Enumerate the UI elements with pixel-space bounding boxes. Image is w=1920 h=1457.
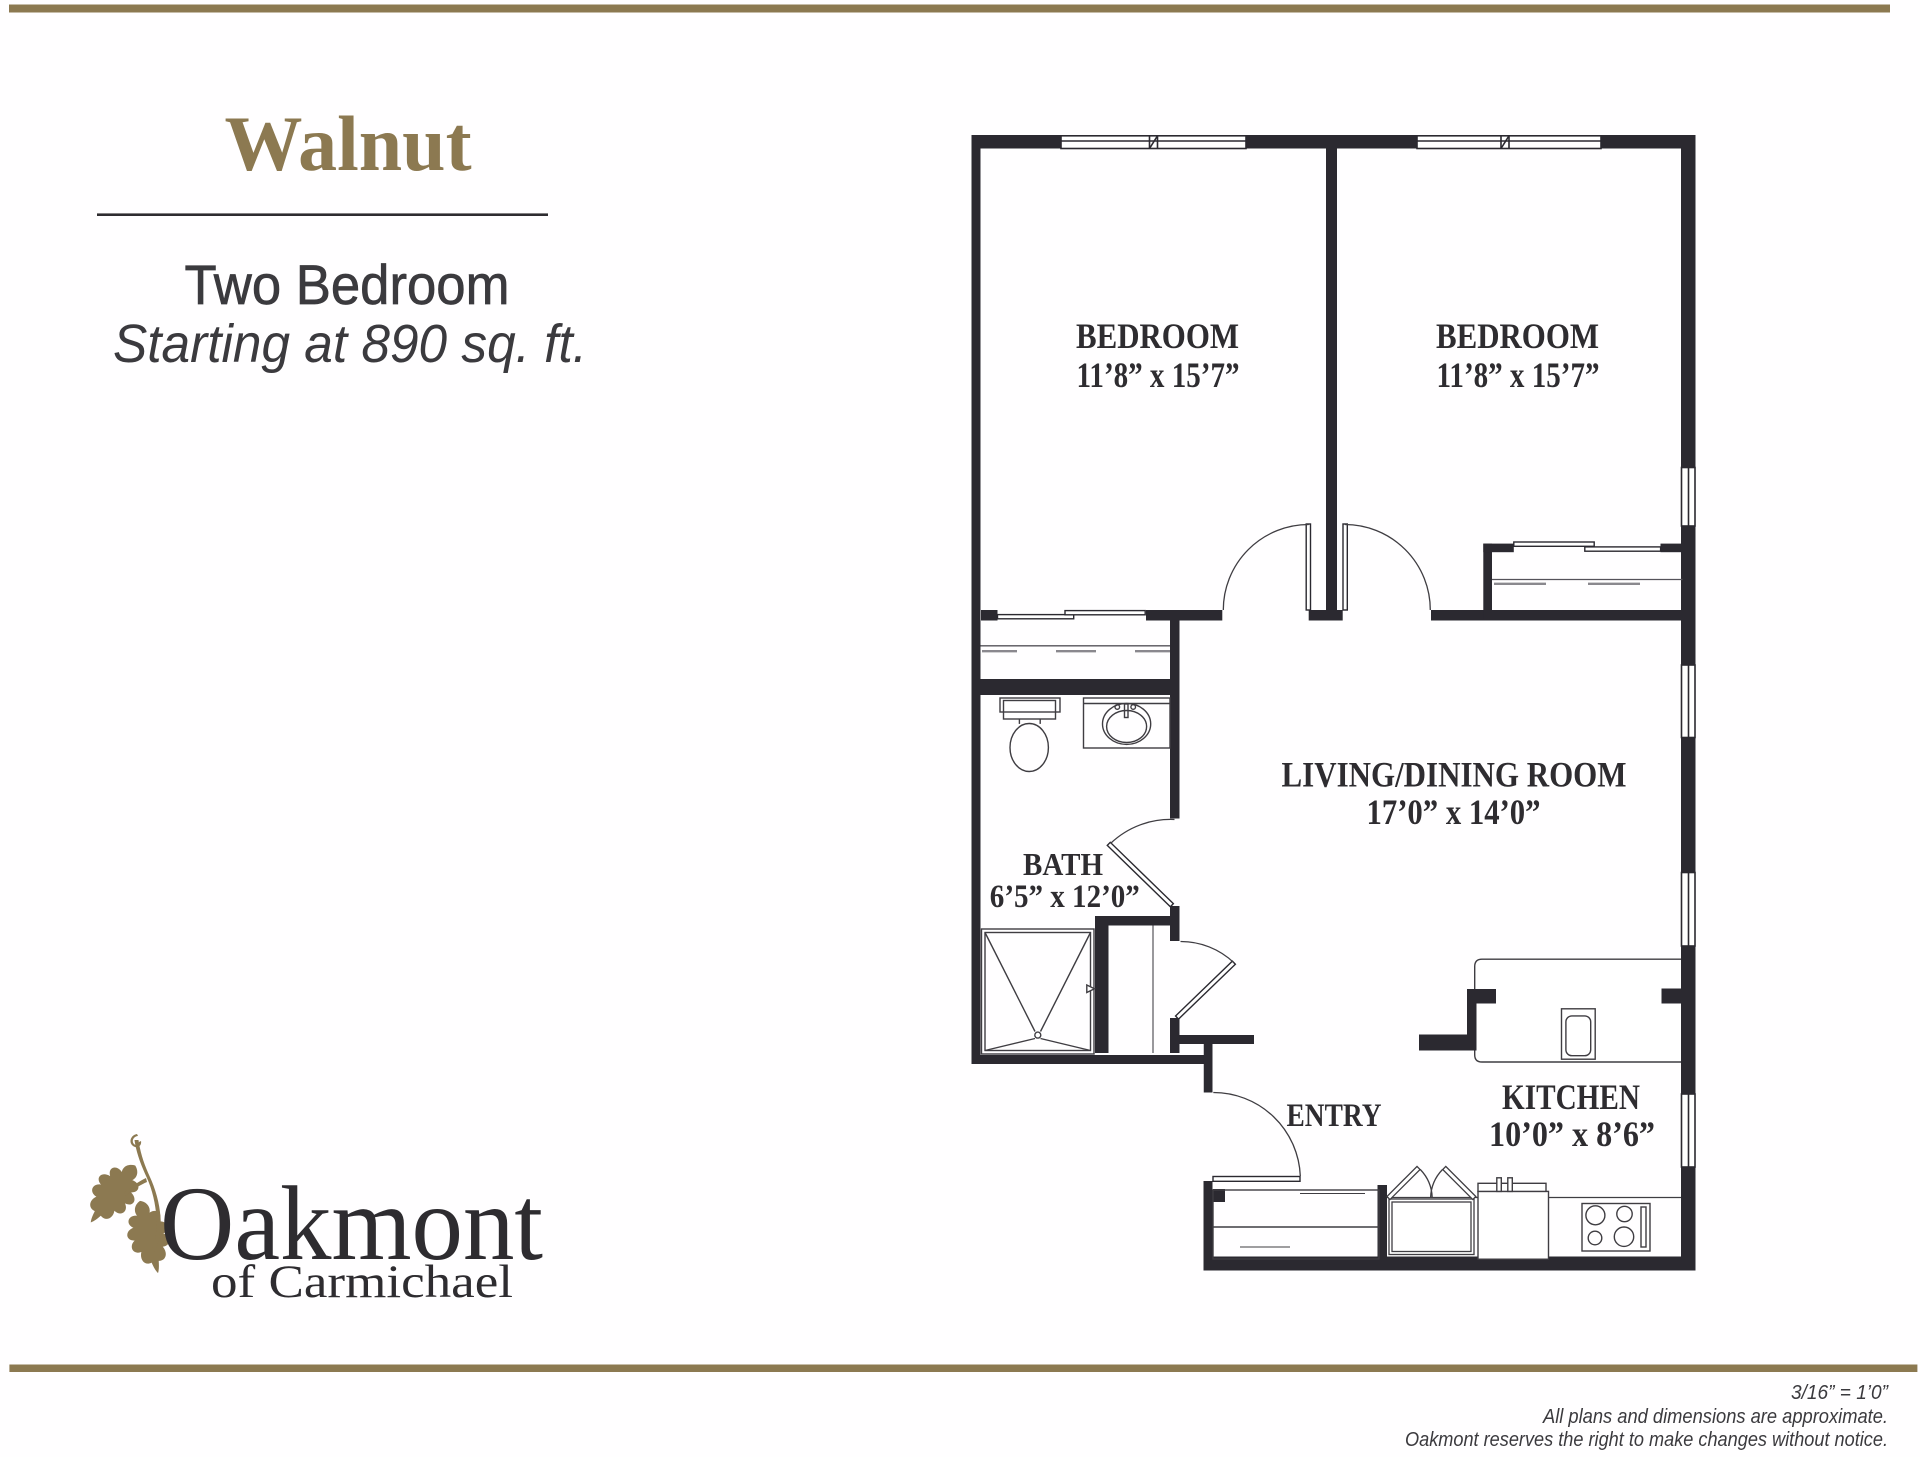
svg-text:Oakmont reserves the right to: Oakmont reserves the right to make chang… xyxy=(1405,1429,1888,1451)
svg-text:LIVING/DINING ROOM: LIVING/DINING ROOM xyxy=(1282,755,1627,795)
svg-text:6’5” x 12’0”: 6’5” x 12’0” xyxy=(990,879,1140,915)
svg-text:11’8” x 15’7”: 11’8” x 15’7” xyxy=(1077,355,1240,395)
svg-text:17’0” x 14’0”: 17’0” x 14’0” xyxy=(1367,792,1541,832)
svg-text:3/16” = 1’0”: 3/16” = 1’0” xyxy=(1791,1382,1889,1404)
svg-text:Walnut: Walnut xyxy=(224,100,471,187)
svg-text:of Carmichael: of Carmichael xyxy=(211,1256,513,1308)
svg-text:BEDROOM: BEDROOM xyxy=(1436,316,1599,356)
svg-text:KITCHEN: KITCHEN xyxy=(1502,1077,1640,1117)
svg-text:ENTRY: ENTRY xyxy=(1287,1098,1382,1134)
svg-text:BEDROOM: BEDROOM xyxy=(1076,316,1239,356)
svg-text:10’0” x 8’6”: 10’0” x 8’6” xyxy=(1489,1114,1655,1154)
svg-text:Starting at 890 sq. ft.: Starting at 890 sq. ft. xyxy=(113,314,587,374)
svg-text:Two Bedroom: Two Bedroom xyxy=(185,253,510,316)
svg-text:All plans and dimensions are a: All plans and dimensions are approximate… xyxy=(1542,1406,1888,1428)
svg-text:11’8” x 15’7”: 11’8” x 15’7” xyxy=(1437,355,1600,395)
svg-text:BATH: BATH xyxy=(1023,846,1103,882)
